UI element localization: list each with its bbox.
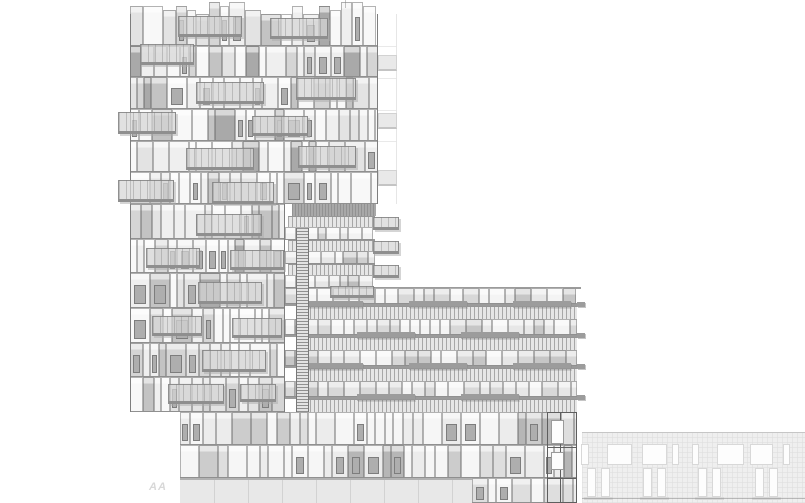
tower-panel [338,172,351,204]
midrise-panel [570,319,577,335]
podium-panel [218,445,228,478]
midrise-panel [524,319,534,335]
neighbor-window [672,444,679,465]
tower-panel [270,343,277,378]
tower-panel [177,273,184,308]
tower-panel [267,273,274,308]
neighbor-base-line [582,498,805,499]
podium-panel [391,445,404,478]
window [133,355,140,374]
midrise-edge-slab [577,333,585,338]
podium-panel [316,412,335,445]
window [209,251,216,270]
roof-tick [345,0,346,8]
midrise-edge-slab [577,395,585,400]
tower-panel [222,46,235,78]
window [206,320,212,339]
tower-panel [360,46,367,78]
tower-panel [268,141,284,173]
tower-panel [352,2,363,46]
neighbor-window [717,444,744,465]
neighbor-door-window [587,468,596,497]
tower-panel [130,343,143,378]
tower-panel [130,77,137,109]
podium-panel [518,412,526,445]
balcony [118,112,176,134]
midrise-panel [308,319,318,335]
wing-balcony [373,265,399,278]
tower-panel [284,172,304,204]
window [188,285,197,304]
tower-panel [144,77,151,109]
window [446,424,457,442]
podium-panel [493,445,506,478]
window [296,457,305,475]
midrise-panel [473,350,486,366]
tower-panel [206,239,219,274]
podium-panel [412,445,425,478]
midrise-panel [318,381,328,397]
tower-panel [179,172,190,204]
podium-panel [496,478,512,503]
window [152,355,157,374]
podium-panel [332,445,348,478]
tower-panel [262,77,278,109]
balcony [212,182,274,204]
tower-panel [214,308,223,343]
midrise-panel [534,319,544,335]
tower-panel [170,273,177,308]
midrise-panel [435,381,448,397]
tower-panel [150,343,159,378]
side-strip-line [378,141,397,142]
side-strip-line [378,78,397,79]
podium-panel [531,478,544,503]
shaft-window [551,452,564,470]
side-strip-line [378,46,397,47]
window [336,457,345,475]
side-balcony [378,170,397,186]
tower-panel [284,141,291,173]
ground-joint [316,480,317,503]
tower-panel [315,46,331,78]
tower-panel [152,204,161,239]
podium-panel [180,445,199,478]
tower-panel [196,46,209,78]
podium-panel [525,445,544,478]
balcony [202,350,266,372]
window [238,120,244,137]
midrise-panel [554,319,570,335]
tower-panel [272,204,279,239]
podium-panel [335,412,354,445]
balcony [186,148,254,170]
tower-panel [341,2,352,46]
neighbor-window [692,444,699,465]
tower-panel [246,46,259,78]
podium-panel [423,412,442,445]
window [530,424,539,442]
midrise-panel [285,381,295,397]
tower-panel [143,6,163,46]
tower-panel [203,308,214,343]
tower-panel [339,109,350,141]
midrise-balustrade [302,368,577,381]
window [465,424,476,442]
balcony [198,282,262,304]
podium-panel [284,445,292,478]
midrise-panel [425,381,435,397]
tower-panel [363,6,376,46]
tower-panel [130,377,143,412]
neighbor-window [642,444,667,465]
window [307,183,313,200]
window [288,183,300,200]
balcony [252,116,308,136]
tower-panel [209,46,222,78]
tower-edge-line [130,14,131,412]
podium-panel [393,412,403,445]
tower-panel [331,172,338,204]
midrise-panel [479,288,489,304]
podium-panel [526,412,542,445]
shaft-window [551,420,564,444]
neighbor-window [607,444,632,465]
podium-panel [203,412,216,445]
balcony [196,214,262,236]
midrise-balustrade [302,399,577,412]
midrise-panel [529,381,542,397]
ground-joint [214,480,215,503]
balcony [118,180,174,202]
midrise-panel [285,319,295,335]
midrise-panel [486,350,502,366]
midrise-panel [430,319,440,335]
neighbor-window [581,444,589,465]
ground-joint [384,480,385,503]
podium-panel [364,445,383,478]
midrise-panel [308,381,318,397]
wing-dark-band [292,204,376,216]
balcony [146,248,200,268]
tower-panel [150,273,170,308]
neighbor-door-window [698,468,707,497]
shaft-line [547,447,577,448]
tower-panel [151,77,167,109]
window [334,57,341,74]
balcony [178,16,242,37]
midrise-panel [489,288,505,304]
podium-panel [228,445,247,478]
podium-panel [308,445,324,478]
ground-wall [180,478,472,503]
tower-panel [143,377,154,412]
window [182,424,187,442]
balcony [240,384,276,402]
podium-panel [277,412,290,445]
midrise-panel [558,381,571,397]
midrise-panel [344,319,354,335]
window [368,457,379,475]
window [355,17,361,41]
tower-panel [130,141,137,173]
tower-panel [130,273,150,308]
tower-panel [315,109,326,141]
elevation-mark: AA [149,481,167,493]
ground-joint [452,480,453,503]
tower-panel [130,204,141,239]
tower-panel [130,308,150,343]
window [134,285,146,304]
neighbor-door-window [769,468,778,497]
window [170,355,182,374]
neighbor-door-window [755,468,764,497]
window [221,251,226,270]
podium-panel [499,412,518,445]
window [281,88,288,105]
podium-panel [190,412,203,445]
ground-joint [282,480,283,503]
podium-panel [461,412,480,445]
shaft-line [547,478,577,479]
window [154,285,166,304]
podium-panel [435,445,448,478]
window [500,487,509,500]
midrise-panel [318,319,331,335]
balcony [168,384,224,404]
window [229,389,236,408]
tower-panel [351,172,371,204]
balcony [140,44,194,65]
tower-panel [350,109,359,141]
tower-panel [235,46,246,78]
wing-balustrade [288,216,375,227]
balcony [196,82,264,104]
side-balcony [378,113,397,129]
balcony [230,250,284,270]
balcony [152,316,202,336]
podium-panel [480,445,493,478]
midrise-panel [385,288,398,304]
midrise-edge-slab [577,364,585,369]
window [193,424,200,442]
midrise-panel [285,350,295,366]
podium-panel [308,412,316,445]
midrise-panel [392,350,405,366]
tower-panel [266,46,286,78]
podium-panel [472,478,488,503]
ground-joint [248,480,249,503]
podium-panel [385,412,393,445]
tower-panel [208,109,215,141]
podium-panel [251,412,267,445]
window [319,183,328,200]
podium-panel [425,445,435,478]
tower-panel [304,46,315,78]
elevation-canvas: AA [0,0,805,503]
tower-panel [245,10,261,46]
window [357,424,364,442]
tower-panel [326,109,339,141]
tower-panel [331,46,344,78]
window [510,457,521,475]
window [134,320,146,339]
tower-panel [359,109,368,141]
podium-panel [480,412,499,445]
tower-panel [297,46,304,78]
tower-panel [159,343,166,378]
tower-panel [315,172,331,204]
podium-panel [348,445,364,478]
midrise-edge-slab [577,302,585,307]
midrise-panel [440,319,450,335]
midrise-balustrade [302,306,577,319]
tower-panel [201,172,208,204]
wing-balcony [373,241,399,254]
tower-panel [304,172,315,204]
tower-panel [130,6,143,46]
podium-panel [488,478,496,503]
podium-panel [375,412,385,445]
podium-panel [267,412,277,445]
window [171,88,183,105]
podium-panel [292,445,308,478]
midrise-panel [544,319,554,335]
podium-panel [442,412,461,445]
tower-panel [190,172,201,204]
balcony [330,286,374,298]
tower-panel [259,46,266,78]
midrise-panel [376,350,392,366]
podium-panel [247,445,260,478]
tower-panel [259,141,268,173]
window [368,152,375,169]
podium-panel [403,412,413,445]
tower-panel [130,239,137,274]
neighbor-window [750,444,773,465]
tower-panel [163,10,176,46]
ground-joint [418,480,419,503]
podium-panel [354,412,367,445]
podium-panel [506,445,525,478]
podium-panel [268,445,284,478]
tower-panel [368,109,375,141]
midrise-panel [542,381,558,397]
midrise-panel [420,319,430,335]
podium-panel [260,445,268,478]
podium-panel [232,412,251,445]
podium-panel [404,445,412,478]
podium-panel [512,478,531,503]
tower-panel [215,109,235,141]
balcony [232,318,282,338]
podium-panel [300,412,308,445]
tower-panel [161,204,174,239]
tower-panel [137,239,144,274]
wing-balcony [373,217,399,230]
tower-panel [167,77,187,109]
balcony [270,18,328,39]
podium-panel [199,445,218,478]
window [307,57,313,74]
tower-panel [154,377,161,412]
tower-panel [141,204,152,239]
tower-panel [137,77,144,109]
neighbor-window [783,444,790,465]
side-strip-line [378,110,397,111]
podium-panel [448,445,461,478]
podium-panel [324,445,332,478]
tower-panel [286,46,297,78]
midrise-balustrade [302,337,577,350]
podium-panel [180,412,190,445]
podium-panel [383,445,391,478]
window [189,355,196,374]
tower-panel [137,141,153,173]
tower-panel [226,377,239,412]
tower-panel [235,109,246,141]
tower-panel [143,343,150,378]
tower-panel [174,204,185,239]
tower-panel [223,308,230,343]
window [193,183,199,200]
midrise-panel [375,288,385,304]
tower-panel [344,46,360,78]
tower-panel [330,10,341,46]
window [394,457,401,475]
tower-panel [186,343,199,378]
tower-panel [278,77,291,109]
neighbor-door-window [601,468,610,497]
tower-panel [219,239,228,274]
tower-panel [166,343,186,378]
side-balcony [378,55,397,71]
ground-joint [350,480,351,503]
neighbor-door-window [712,468,721,497]
tower-panel [153,141,169,173]
midrise-panel [331,319,344,335]
window [319,57,328,74]
podium-panel [216,412,232,445]
midrise-panel [328,381,344,397]
stair-ladder [296,228,309,412]
tower-panel [192,109,208,141]
neighbor-door-window [643,468,652,497]
tower-panel [277,172,284,204]
balcony [298,146,356,168]
podium-panel [413,412,423,445]
podium-panel [461,445,480,478]
podium-panel [290,412,300,445]
window [476,487,485,500]
window [352,457,361,475]
podium-panel [367,412,375,445]
balcony [296,78,356,100]
neighbor-door-window [657,468,666,497]
